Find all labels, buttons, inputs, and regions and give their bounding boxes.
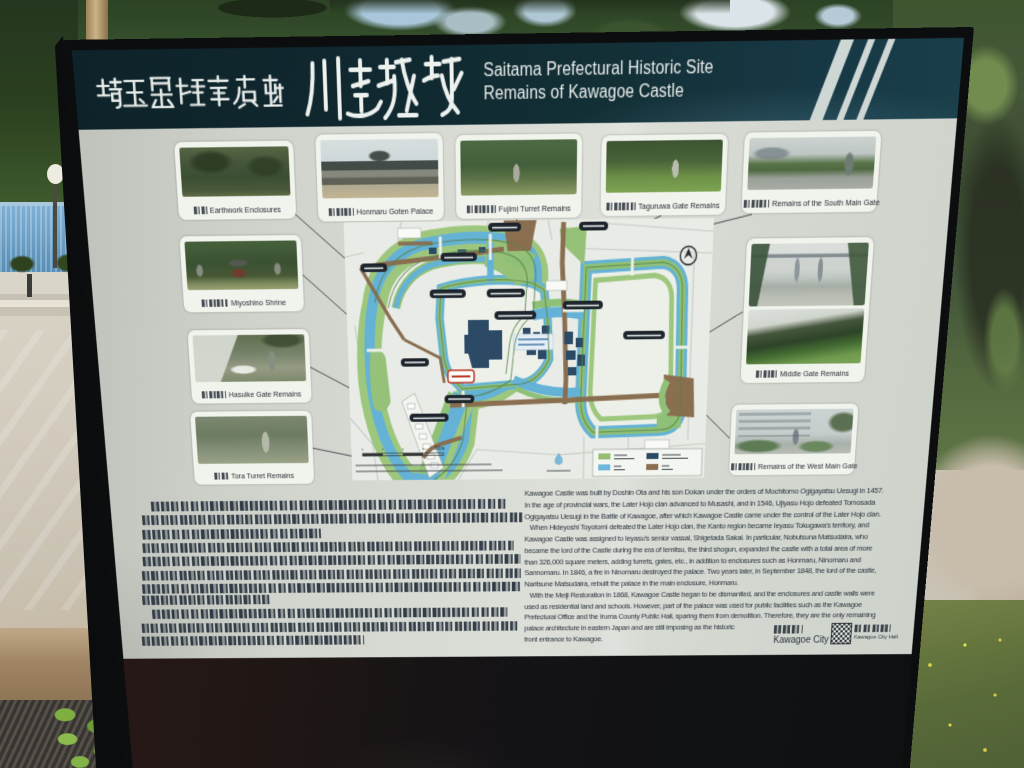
svg-text:300m: 300m	[434, 446, 444, 452]
